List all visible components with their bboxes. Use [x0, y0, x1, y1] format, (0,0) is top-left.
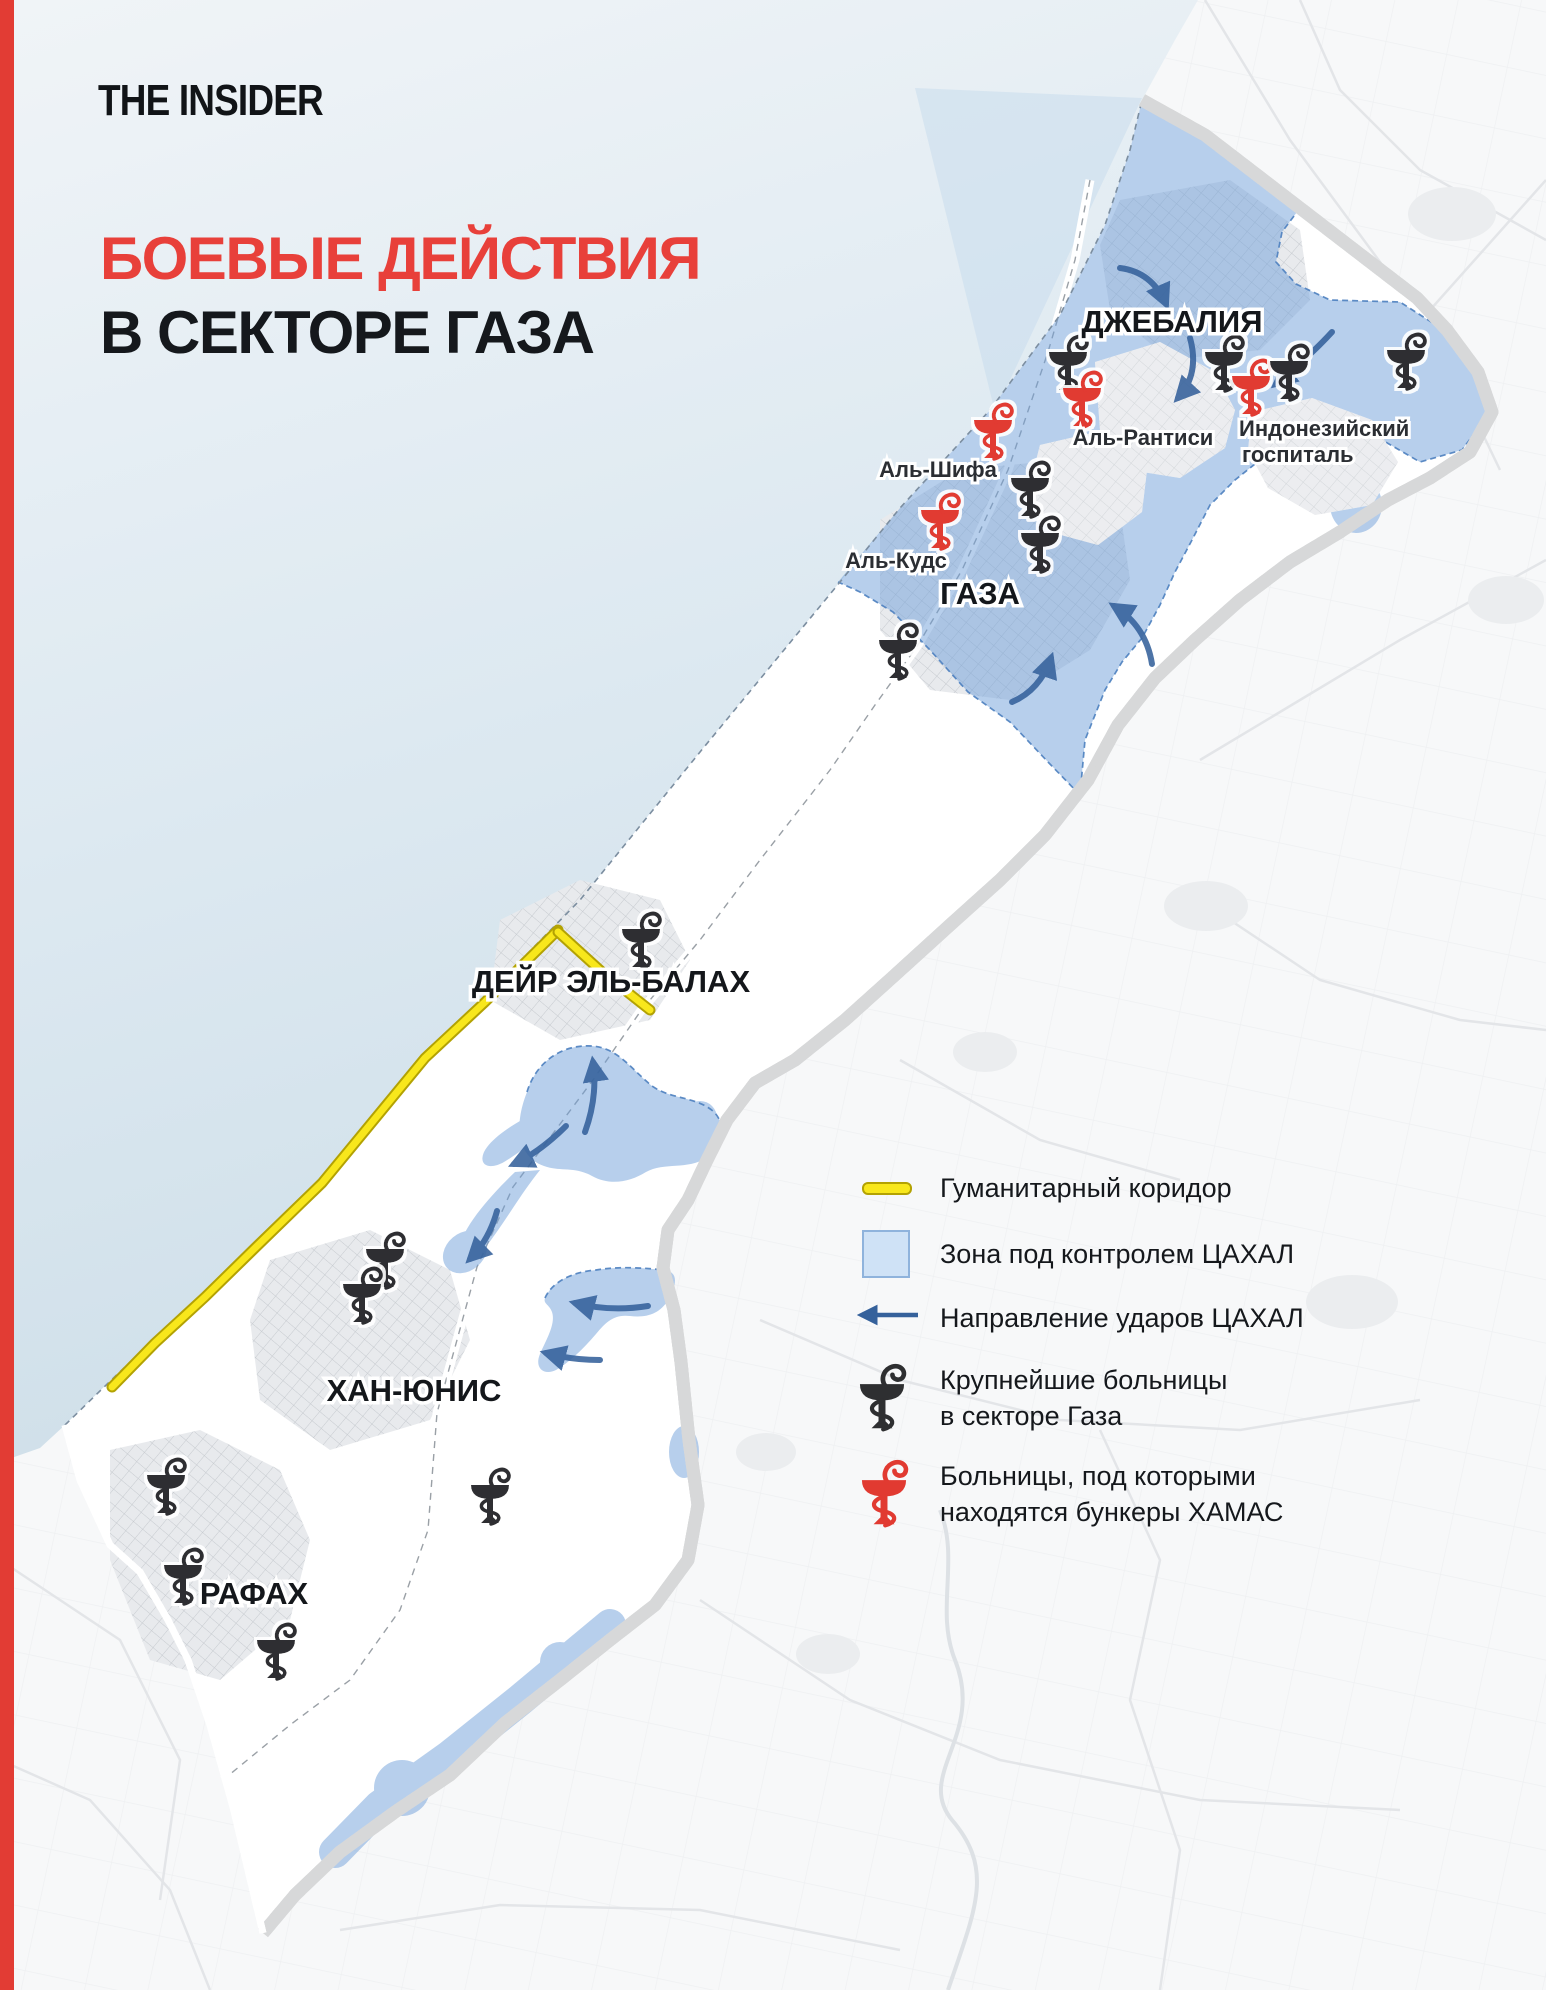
label-indonesian-2: госпиталь: [1242, 442, 1354, 467]
hospital-icon-legend-black: [856, 1362, 908, 1434]
legend-hospitals-line1: Крупнейшие больницы: [940, 1362, 1227, 1398]
label-rafah: РАФАХ: [200, 1576, 309, 1611]
accent-bar: [0, 0, 14, 1990]
legend-corridor-label: Гуманитарный коридор: [940, 1170, 1232, 1206]
label-al-quds: Аль-Кудс: [845, 548, 947, 573]
strike-arrow-swatch: [846, 1300, 924, 1330]
infographic-gaza-map: ДЖЕБАЛИЯ ГАЗА ДЕЙР ЭЛЬ-БАЛАХ ХАН-ЮНИС РА…: [0, 0, 1546, 1990]
idf-zone-swatch: [862, 1230, 910, 1278]
legend-item-bunker-hospitals: Больницы, под которыми находятся бункеры…: [858, 1458, 1283, 1530]
label-indonesian-1: Индонезийский: [1239, 416, 1409, 441]
legend-hospitals-line2: в секторе Газа: [940, 1398, 1227, 1434]
legend-strikes-label: Направление ударов ЦАХАЛ: [940, 1300, 1304, 1336]
logo-the-insider: THE INSIDER: [98, 76, 323, 126]
label-khan-yunis: ХАН-ЮНИС: [327, 1373, 502, 1408]
label-al-rantisi: Аль-Рантиси: [1073, 425, 1214, 450]
label-jabalia: ДЖЕБАЛИЯ: [1082, 304, 1263, 339]
legend-bunker-hospitals-label: Больницы, под которыми находятся бункеры…: [940, 1458, 1283, 1530]
label-gaza: ГАЗА: [940, 576, 1020, 611]
title-line-1: БОЕВЫЕ ДЕЙСТВИЯ: [100, 222, 700, 296]
title-line-2: В СЕКТОРЕ ГАЗА: [100, 296, 700, 370]
page-title: БОЕВЫЕ ДЕЙСТВИЯ В СЕКТОРЕ ГАЗА: [100, 222, 700, 370]
legend-bunker-line1: Больницы, под которыми: [940, 1458, 1283, 1494]
legend-hospitals-label: Крупнейшие больницы в секторе Газа: [940, 1362, 1227, 1434]
corridor-line-swatch: [862, 1182, 912, 1195]
legend-item-idf-zone: Зона под контролем ЦАХАЛ: [862, 1230, 1294, 1278]
legend-item-hospitals: Крупнейшие больницы в секторе Газа: [856, 1362, 1227, 1434]
legend-bunker-line2: находятся бункеры ХАМАС: [940, 1494, 1283, 1530]
legend-item-corridor: Гуманитарный коридор: [862, 1170, 1232, 1206]
legend-item-strikes: Направление ударов ЦАХАЛ: [846, 1300, 1304, 1336]
legend-idf-zone-label: Зона под контролем ЦАХАЛ: [940, 1236, 1294, 1272]
hospital-icon-legend-red: [858, 1458, 910, 1530]
label-al-shifa: Аль-Шифа: [879, 457, 998, 482]
label-deir-el-balah: ДЕЙР ЭЛЬ-БАЛАХ: [472, 963, 751, 999]
